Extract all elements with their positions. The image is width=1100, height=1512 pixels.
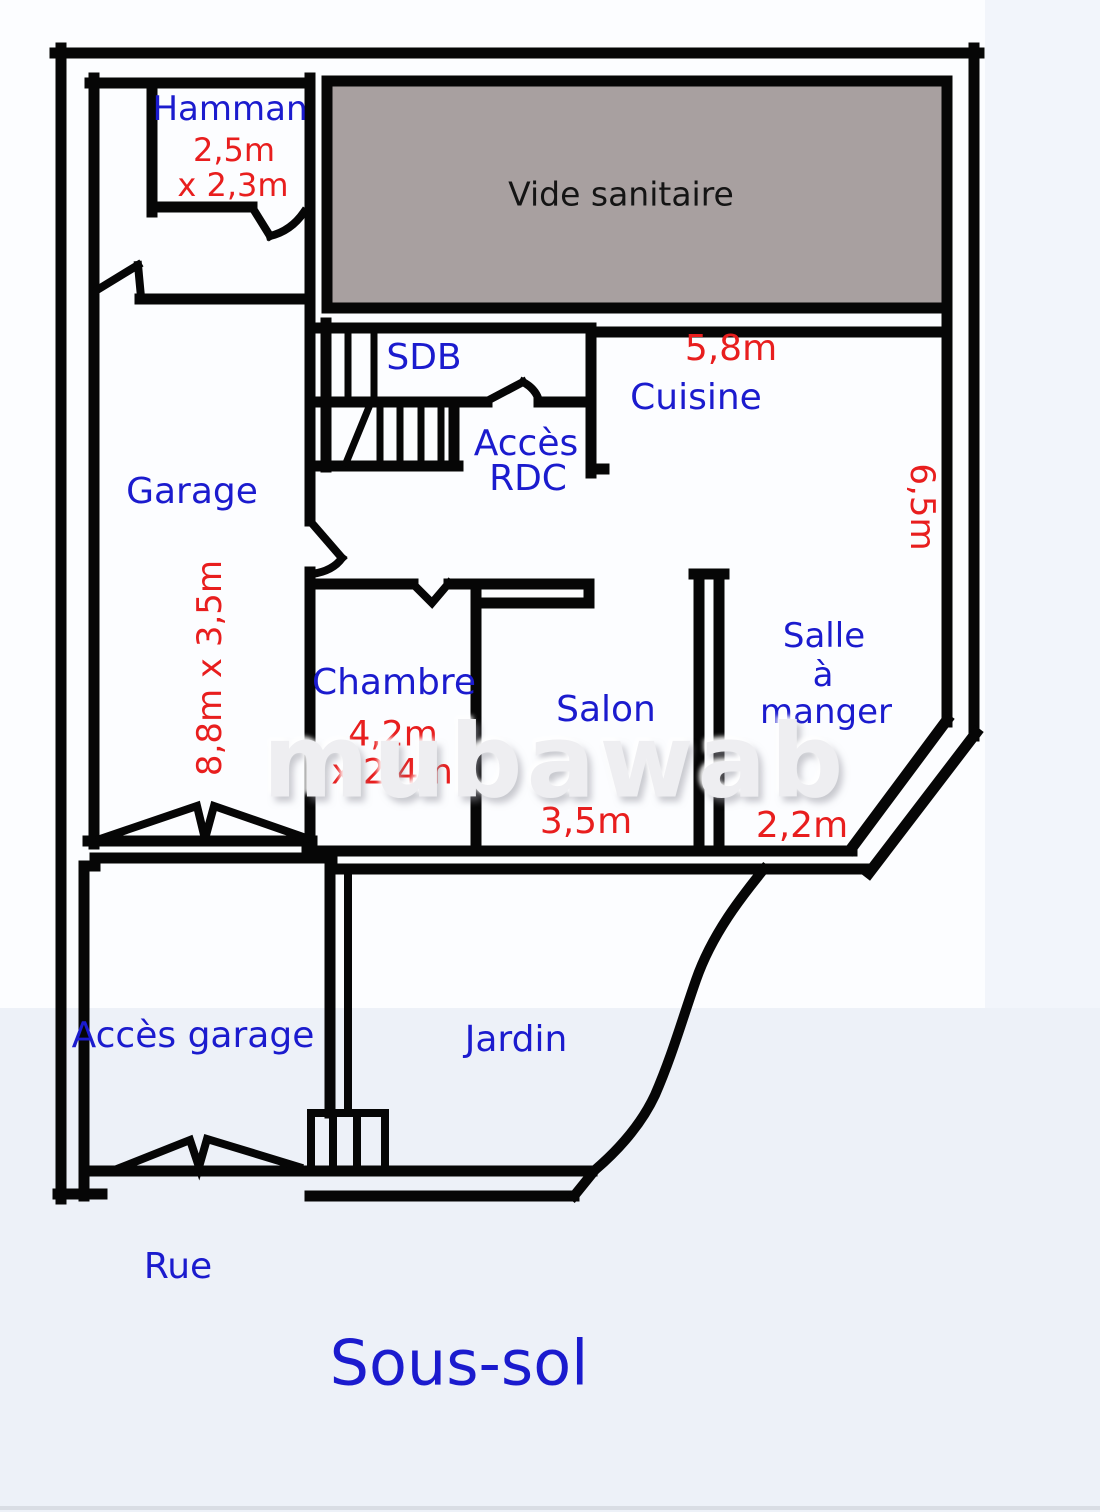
watermark: mubawab — [263, 703, 848, 822]
salle-a-manger-label-1: Salle — [783, 619, 865, 655]
hamman-dim-1: 2,5m — [193, 134, 275, 168]
hamman-label: Hamman — [152, 92, 307, 128]
acces-rdc-label-2: RDC — [489, 460, 567, 498]
hamman-dim-2: x 2,3m — [177, 169, 288, 203]
vide-sanitaire-label: Vide sanitaire — [508, 178, 734, 213]
exterior-steps — [311, 874, 385, 1170]
garage-dims: 8,8m x 3,5m — [193, 560, 229, 776]
cuisine-label: Cuisine — [630, 379, 762, 417]
garden-boundary-curve — [574, 869, 764, 1196]
cuisine-depth-dim: 6,5m — [903, 463, 939, 550]
cuisine-width-dim: 5,8m — [685, 330, 777, 368]
acces-garage-label: Accès garage — [72, 1017, 315, 1055]
chambre-label: Chambre — [312, 664, 476, 702]
rue-label: Rue — [144, 1248, 212, 1286]
garage-label: Garage — [126, 473, 258, 511]
page-title: Sous-sol — [330, 1330, 589, 1395]
salle-a-manger-label-2: à — [813, 658, 834, 694]
sdb-label: SDB — [386, 339, 461, 377]
jardin-label: Jardin — [465, 1021, 568, 1059]
